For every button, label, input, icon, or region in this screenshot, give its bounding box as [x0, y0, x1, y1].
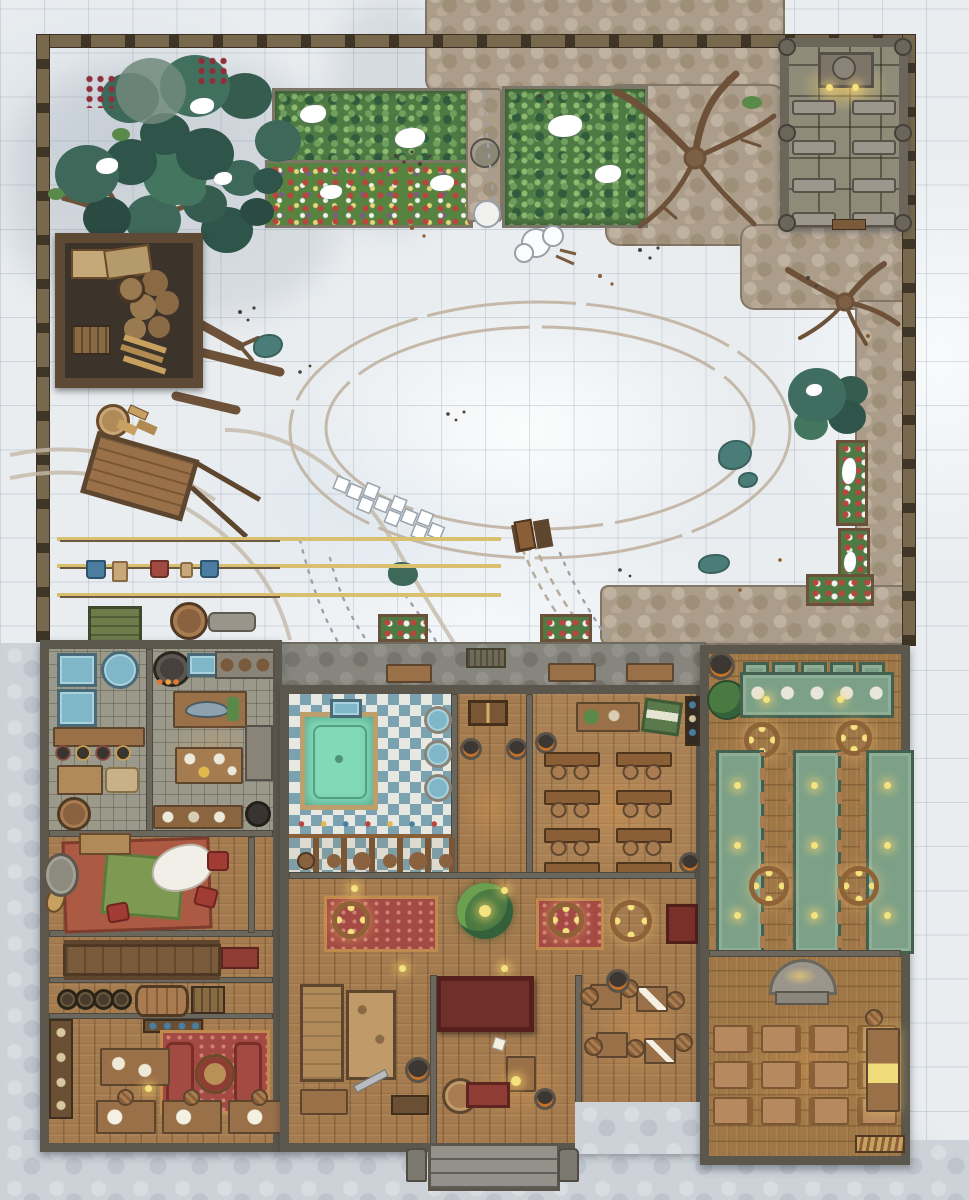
crate — [71, 325, 111, 355]
grey-bench — [208, 612, 256, 632]
round-table — [195, 1054, 235, 1094]
apple-dots — [196, 56, 230, 84]
long-table — [866, 750, 914, 954]
sleeping-mat — [809, 1025, 849, 1053]
desk-stools — [544, 802, 596, 818]
storage-chest — [468, 700, 508, 726]
stone-oven — [43, 853, 79, 897]
game-room — [582, 975, 696, 1100]
chapel-pew — [852, 178, 896, 193]
corridor-brazier — [460, 738, 482, 760]
horned-statue — [558, 1148, 579, 1182]
skillet — [245, 801, 271, 827]
cabinet — [245, 725, 273, 781]
chapel-pillar — [778, 38, 796, 56]
cellar — [49, 983, 273, 1013]
table-candle — [884, 842, 891, 849]
teacher-desk — [576, 702, 640, 732]
hanging-shirt-blue — [200, 560, 219, 578]
table-candle — [811, 842, 818, 849]
chapel-pillar — [894, 214, 912, 232]
side-table — [300, 1089, 348, 1115]
sleeping-mat — [713, 1025, 753, 1053]
large-barrel — [135, 985, 189, 1017]
terrace-bench — [548, 663, 596, 682]
hearth-stone — [775, 991, 829, 1005]
hanging-shirt-red — [150, 560, 169, 578]
study — [49, 1019, 273, 1143]
stage — [436, 976, 534, 1032]
rock-tuft — [742, 96, 762, 109]
door-mat — [466, 648, 506, 668]
workbench — [346, 990, 396, 1080]
flour-sacks — [105, 767, 139, 793]
crate — [191, 986, 225, 1014]
table-candle — [811, 782, 818, 789]
tool-shelf — [391, 1095, 429, 1115]
game-stool — [674, 1033, 693, 1052]
desk-stools — [616, 802, 668, 818]
desk-stool — [183, 1089, 200, 1106]
cart-shaft — [190, 485, 248, 538]
chapel-door — [832, 219, 866, 230]
wall — [526, 694, 533, 874]
workshop-brazier — [405, 1057, 431, 1083]
footprint-trails — [300, 92, 612, 648]
desk-stools — [616, 764, 668, 780]
chapel-pillar — [894, 38, 912, 56]
wall-sconce — [501, 965, 508, 972]
lounge — [49, 837, 248, 930]
table-candle — [811, 912, 818, 919]
fence-tuft — [112, 128, 130, 141]
fence-tuft — [48, 188, 64, 200]
kindling — [123, 334, 167, 353]
horned-statue — [406, 1148, 427, 1182]
battlemap — [0, 0, 969, 1200]
wheel-chandelier — [332, 901, 370, 939]
chapel-pew — [792, 178, 836, 193]
chapel-pillar — [894, 124, 912, 142]
scullery — [49, 649, 146, 830]
game-room-brazier — [606, 969, 630, 993]
wall — [451, 694, 458, 874]
chapel-pew — [792, 140, 836, 155]
desk-stool — [117, 1089, 134, 1106]
bench-row — [710, 752, 715, 948]
notice-board — [666, 904, 698, 944]
stove-embers — [155, 679, 179, 685]
hall-corridor — [458, 694, 526, 874]
pool — [300, 712, 378, 810]
document-table — [100, 1048, 170, 1086]
wall — [289, 872, 696, 879]
long-bench-table — [63, 944, 221, 976]
corridor-brazier — [506, 738, 528, 760]
workbench — [300, 984, 344, 1082]
sleeping-mat — [761, 1061, 801, 1089]
wall-sconce — [501, 887, 508, 894]
clothesline — [60, 540, 280, 542]
wall — [248, 837, 255, 933]
evergreen-canopy — [55, 145, 119, 203]
wall-sconce — [351, 885, 358, 892]
evergreen-canopy — [255, 120, 301, 162]
desk-stools — [544, 764, 596, 780]
hanging-shirt-blue — [86, 560, 106, 579]
clothesline — [60, 596, 280, 598]
altar-candle — [826, 84, 833, 91]
wall — [430, 975, 437, 1152]
classroom-brazier — [679, 852, 701, 874]
sleeping-mat — [809, 1097, 849, 1125]
fish — [185, 701, 229, 718]
porch-steps — [428, 1143, 560, 1191]
cushion — [207, 851, 229, 871]
game-stool — [580, 987, 599, 1006]
mess-corridor — [49, 937, 273, 977]
reception-desk — [506, 1056, 536, 1092]
workshop — [289, 975, 430, 1143]
wash-tub — [57, 653, 97, 687]
round-basin — [101, 651, 139, 689]
game-table — [636, 986, 668, 1012]
table-candle — [734, 782, 741, 789]
sleeping-mat — [713, 1097, 753, 1125]
desk-stools — [544, 840, 596, 856]
corridor-light — [462, 764, 522, 854]
bench-row — [787, 752, 792, 948]
desk-stool — [251, 1089, 268, 1106]
entry-hall — [437, 1032, 577, 1143]
apple-dots — [84, 74, 118, 108]
game-stool — [626, 1039, 645, 1058]
flower-box — [540, 614, 592, 642]
game-stool — [666, 991, 685, 1010]
table-candle — [884, 912, 891, 919]
wash-tub — [57, 689, 97, 727]
great-hall — [289, 879, 696, 975]
sleeping-mat — [809, 1061, 849, 1089]
counter-lids — [215, 651, 275, 679]
stall-bucket — [297, 852, 315, 870]
entry-brazier — [534, 1088, 556, 1110]
sled-track-oval — [290, 302, 790, 558]
lumber-shed — [55, 233, 203, 388]
wall — [146, 649, 153, 833]
dorm-stool — [865, 1009, 883, 1027]
cushion — [106, 901, 131, 924]
ground-debris — [238, 94, 818, 577]
barrel — [170, 602, 208, 640]
round-bath-basin — [424, 706, 452, 734]
desk-lantern — [511, 1076, 521, 1086]
bread-table — [57, 765, 103, 795]
chapel-pew — [792, 212, 836, 227]
mosaic-border — [292, 820, 450, 828]
wheel-chandelier — [839, 866, 879, 906]
pool-drain — [335, 755, 343, 763]
long-table — [716, 750, 764, 954]
game-stool — [584, 1037, 603, 1056]
small-tub — [330, 699, 362, 718]
pot-rack — [55, 745, 135, 761]
east-planter — [836, 440, 868, 526]
scroll-shelf — [49, 1019, 73, 1119]
sleeping-mat — [713, 1061, 753, 1089]
changing-stalls — [289, 834, 451, 876]
red-bench — [466, 1082, 510, 1108]
chapel-pillar — [778, 214, 796, 232]
bench-row — [837, 752, 842, 948]
feast-brazier — [707, 652, 735, 680]
table-candle — [145, 1085, 152, 1092]
terrace-bench — [386, 664, 432, 683]
bench-row — [860, 752, 865, 948]
keg — [111, 989, 132, 1010]
wheel-chandelier — [548, 902, 584, 938]
scroll-bookcase — [685, 696, 700, 746]
wheel-chandelier — [749, 866, 789, 906]
chapel-pew — [852, 100, 896, 115]
classroom — [533, 694, 696, 874]
terrace-bench — [626, 663, 674, 682]
chapel-pew — [852, 140, 896, 155]
altar-statue — [832, 56, 856, 80]
hazy-canopy — [116, 58, 186, 124]
map-board — [641, 698, 683, 737]
smoke-puff — [515, 226, 576, 264]
red-bench — [221, 947, 259, 969]
table-candle — [734, 912, 741, 919]
leeks — [227, 697, 239, 721]
wheel-chandelier — [610, 900, 652, 942]
log-pile — [117, 275, 145, 303]
table-candle — [734, 842, 741, 849]
kitchen — [153, 649, 273, 830]
desk-stools — [616, 840, 668, 856]
bench-row — [760, 752, 765, 948]
wall — [709, 950, 901, 957]
round-bath-basin — [424, 740, 452, 768]
feast-hall — [709, 654, 901, 950]
hearth-glow — [783, 967, 817, 985]
table-candle — [884, 782, 891, 789]
chapel-pew — [792, 100, 836, 115]
round-tub — [57, 797, 91, 831]
flower-box — [378, 614, 428, 642]
round-bath-basin — [424, 774, 452, 802]
classroom-brazier — [535, 732, 557, 754]
head-table — [740, 672, 894, 718]
day-bed — [79, 833, 131, 855]
dormitory-long-table — [866, 1028, 900, 1112]
game-table — [644, 1038, 676, 1064]
sleeping-mat — [761, 1025, 801, 1053]
chapel-pillar — [778, 124, 796, 142]
dining-table — [175, 747, 243, 784]
tree-lantern — [479, 905, 491, 917]
bottom-counter — [153, 805, 243, 829]
table-candle — [837, 696, 844, 703]
firewood-pile — [855, 1135, 905, 1153]
southeast-courtyard-gap — [575, 1102, 707, 1154]
courtyard-bush — [388, 562, 418, 586]
altar-candle — [852, 84, 859, 91]
long-table — [793, 750, 841, 954]
wall-sconce — [399, 965, 406, 972]
counter — [53, 727, 145, 747]
sleeping-mat — [761, 1097, 801, 1125]
hanging-trousers-tan — [112, 561, 128, 582]
hanging-mitten — [180, 562, 193, 578]
table-candle — [763, 696, 770, 703]
east-planter — [806, 574, 874, 606]
